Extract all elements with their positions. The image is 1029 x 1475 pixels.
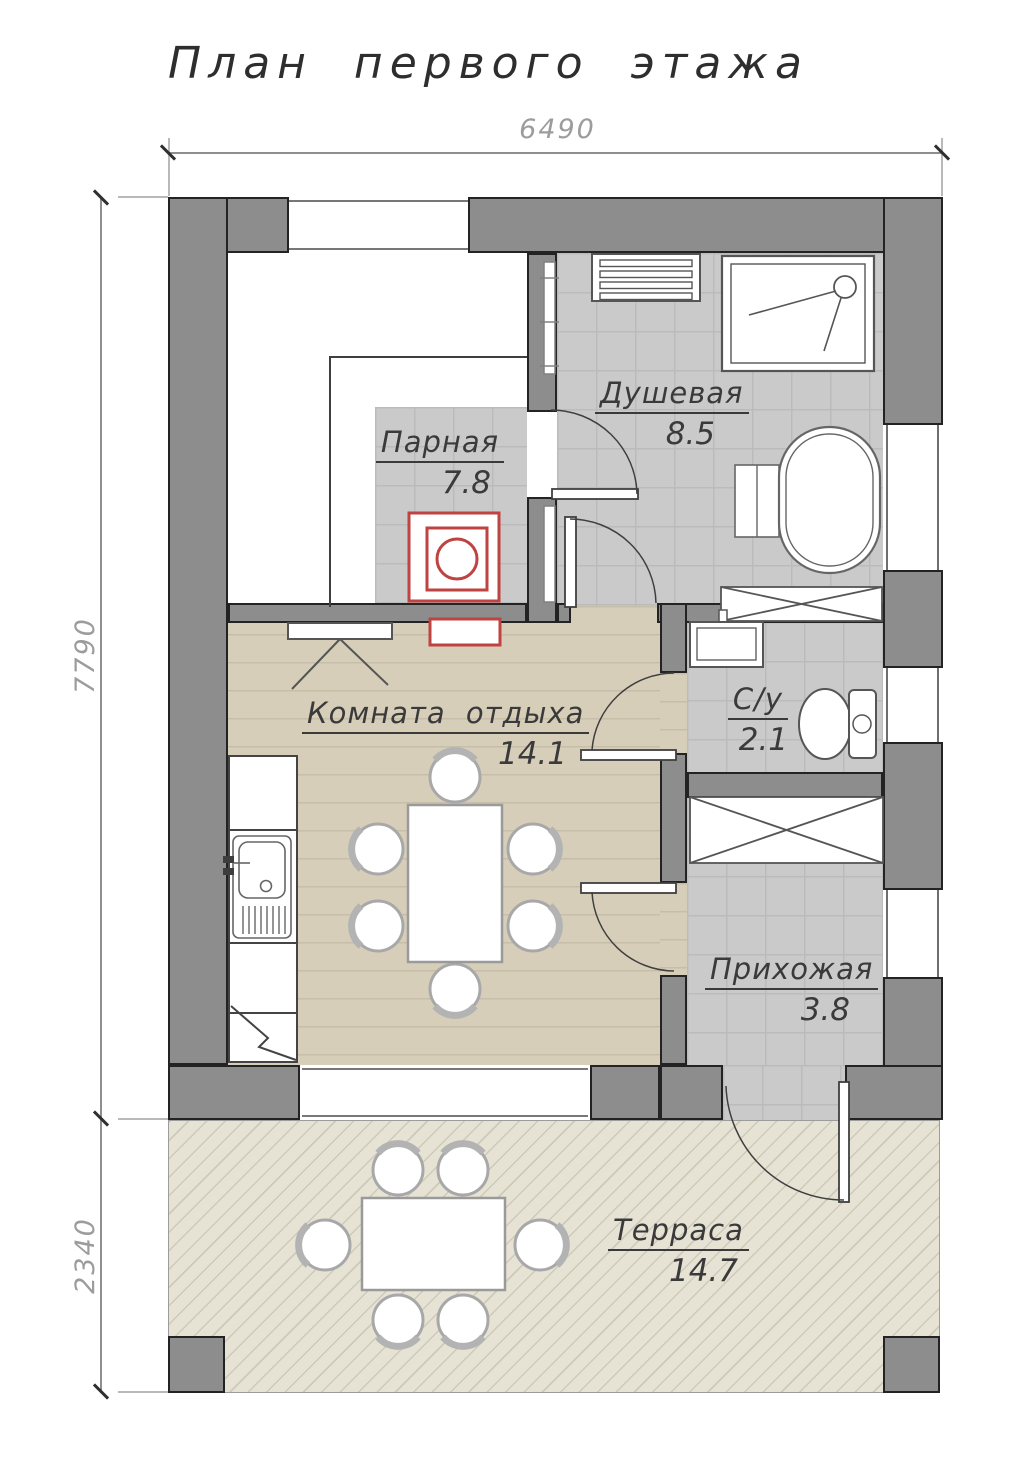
wall-segment [468, 197, 943, 253]
room-area: 7.8 [375, 465, 505, 501]
lounge-wood-floor [228, 606, 660, 1065]
terrace-post [883, 1336, 940, 1393]
window [885, 668, 941, 742]
wall-segment [660, 753, 687, 883]
terrace-post [168, 1336, 225, 1393]
window [289, 199, 468, 251]
extension-line [118, 196, 168, 198]
room-name: Терраса [608, 1213, 749, 1251]
wall-segment [557, 603, 571, 623]
dimension-line-top [168, 152, 943, 154]
wall-segment [883, 742, 943, 890]
extension-line [941, 138, 943, 196]
hall-doorway-floor [660, 883, 687, 975]
extension-line [118, 1391, 168, 1393]
wall-segment [590, 1065, 660, 1120]
room-label-wc: С/у 2.1 [718, 682, 798, 758]
dimension-top-value: 6490 [500, 114, 615, 145]
wall-segment [527, 253, 557, 412]
dimension-terrace-value: 2340 [70, 1208, 101, 1303]
room-name: С/у [728, 682, 788, 720]
extension-line [168, 138, 170, 196]
steam-room-doorway [527, 412, 557, 497]
window [885, 890, 941, 977]
wall-segment [168, 197, 228, 1065]
room-area: 8.5 [595, 416, 745, 452]
room-area: 2.1 [718, 722, 798, 758]
extension-line [118, 1118, 168, 1120]
wc-doorway-floor [660, 673, 687, 753]
room-name: Прихожая [705, 952, 878, 990]
room-label-steam: Парная 7.8 [375, 425, 505, 501]
wall-segment [660, 975, 687, 1065]
wall-segment [660, 1065, 723, 1120]
room-label-lounge: Комната отдыха 14.1 [302, 696, 577, 772]
room-name: Комната отдыха [302, 696, 589, 734]
wall-segment [168, 1065, 300, 1120]
window [302, 1067, 588, 1118]
wall-segment [883, 197, 943, 425]
plan-title: План первого этажа [168, 38, 809, 89]
terrace-floor [168, 1120, 940, 1393]
dimension-left-value: 7790 [70, 608, 101, 703]
room-name: Душевая [595, 376, 749, 414]
wall-segment [228, 603, 527, 623]
wall-segment [845, 1065, 943, 1120]
room-label-terrace: Терраса 14.7 [608, 1213, 748, 1289]
wall-segment [657, 603, 883, 623]
room-area: 14.1 [302, 736, 577, 772]
floor-plan-page: План первого этажа 6490 7790 2340 [0, 0, 1029, 1475]
window [885, 425, 941, 570]
wall-segment [527, 497, 557, 623]
room-label-shower: Душевая 8.5 [595, 376, 745, 452]
wall-segment [660, 603, 687, 673]
hallway-door-tile [723, 1065, 845, 1120]
wall-segment [687, 772, 883, 798]
wall-segment [883, 570, 943, 668]
room-name: Парная [376, 425, 504, 463]
room-area: 14.7 [608, 1253, 748, 1289]
room-area: 3.8 [705, 992, 860, 1028]
room-label-hallway: Прихожая 3.8 [705, 952, 860, 1028]
